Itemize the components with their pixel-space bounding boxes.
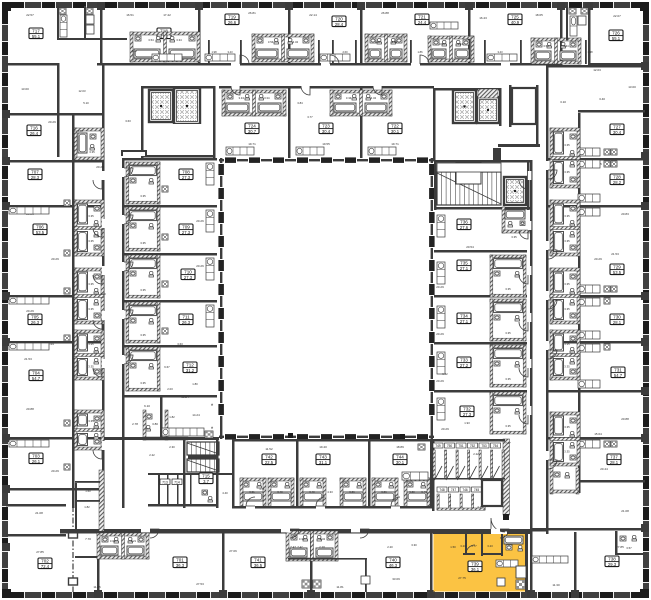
svg-text:3.63: 3.63: [177, 342, 183, 346]
svg-text:710: 710: [184, 269, 192, 274]
svg-text:3.54: 3.54: [543, 44, 549, 48]
svg-text:707: 707: [31, 169, 39, 174]
svg-text:20.88: 20.88: [621, 417, 629, 421]
svg-text:27.06: 27.06: [229, 549, 237, 553]
svg-text:55.1: 55.1: [32, 34, 41, 39]
svg-text:746: 746: [462, 488, 468, 492]
svg-text:3.54: 3.54: [268, 40, 274, 44]
svg-text:3.35: 3.35: [140, 288, 146, 292]
svg-text:3.35: 3.35: [564, 170, 570, 174]
svg-text:11.30: 11.30: [552, 583, 560, 587]
svg-text:740: 740: [389, 557, 397, 562]
svg-text:1.60: 1.60: [85, 489, 91, 493]
svg-text:3.34: 3.34: [457, 42, 463, 46]
svg-text:28.4: 28.4: [335, 22, 344, 27]
svg-text:3.35: 3.35: [88, 282, 94, 286]
svg-text:3.40: 3.40: [599, 97, 605, 101]
svg-text:20.29: 20.29: [51, 257, 59, 261]
svg-text:3.63: 3.63: [125, 119, 131, 123]
svg-text:31.2: 31.2: [186, 368, 195, 373]
svg-text:72.4: 72.4: [41, 564, 50, 569]
svg-text:55.1: 55.1: [612, 36, 621, 41]
svg-text:3.23: 3.23: [460, 544, 466, 548]
svg-text:719: 719: [228, 14, 236, 19]
svg-text:3.35: 3.35: [88, 342, 94, 346]
svg-text:3.35: 3.35: [88, 365, 94, 369]
svg-text:27.2: 27.2: [460, 363, 469, 368]
svg-text:30.1: 30.1: [391, 129, 400, 134]
svg-text:2.22: 2.22: [473, 452, 479, 456]
svg-text:3.35: 3.35: [140, 381, 146, 385]
svg-text:750: 750: [447, 444, 453, 448]
svg-text:7.47: 7.47: [297, 545, 303, 549]
svg-text:2.20: 2.20: [387, 545, 393, 549]
svg-text:3.40: 3.40: [77, 129, 83, 133]
svg-text:29.3: 29.3: [608, 562, 617, 567]
svg-text:27.3: 27.3: [182, 230, 191, 235]
svg-text:54.7: 54.7: [32, 376, 41, 381]
svg-text:1.86: 1.86: [417, 50, 423, 54]
svg-text:19.55: 19.55: [322, 142, 330, 146]
svg-text:22.5: 22.5: [265, 460, 274, 465]
svg-text:3.54: 3.54: [148, 38, 154, 42]
svg-text:728: 728: [613, 174, 621, 179]
svg-text:3.35: 3.35: [564, 342, 570, 346]
svg-text:26.3: 26.3: [182, 320, 191, 325]
svg-text:20.29: 20.29: [436, 379, 444, 383]
svg-text:3.35: 3.35: [511, 235, 517, 239]
svg-text:722: 722: [391, 123, 399, 128]
svg-text:4.13: 4.13: [131, 49, 137, 53]
svg-text:22.07: 22.07: [613, 14, 621, 18]
svg-text:3.35: 3.35: [564, 425, 570, 429]
svg-text:3.51: 3.51: [249, 490, 255, 494]
svg-text:20.54: 20.54: [466, 245, 474, 249]
svg-text:4.40: 4.40: [477, 505, 483, 509]
svg-text:18.89: 18.89: [396, 445, 404, 449]
svg-text:20.29: 20.29: [594, 257, 602, 261]
svg-text:3.35: 3.35: [88, 419, 94, 423]
svg-text:725: 725: [511, 14, 519, 19]
svg-text:31.1: 31.1: [319, 460, 328, 465]
svg-text:12.03: 12.03: [593, 68, 601, 72]
svg-text:3.34: 3.34: [320, 537, 326, 541]
svg-text:16.51: 16.51: [126, 13, 134, 17]
svg-text:3.35: 3.35: [505, 287, 511, 291]
svg-text:3.35: 3.35: [89, 150, 95, 154]
svg-text:744: 744: [396, 454, 404, 459]
svg-text:11.81: 11.81: [336, 585, 344, 589]
svg-text:3.40: 3.40: [277, 490, 283, 494]
svg-text:706: 706: [36, 224, 44, 229]
svg-text:14.24: 14.24: [192, 413, 200, 417]
svg-text:701: 701: [176, 557, 184, 562]
svg-text:3.34: 3.34: [299, 537, 305, 541]
svg-text:3.35: 3.35: [505, 331, 511, 335]
svg-text:26.81: 26.81: [248, 11, 256, 15]
svg-text:733: 733: [460, 357, 468, 362]
svg-text:13.00: 13.00: [628, 85, 636, 89]
svg-text:712: 712: [186, 362, 194, 367]
svg-text:708: 708: [182, 169, 190, 174]
svg-text:12.03: 12.03: [79, 89, 86, 93]
svg-text:26.6: 26.6: [228, 20, 237, 25]
svg-text:3.86: 3.86: [349, 490, 355, 494]
svg-text:27.6: 27.6: [460, 225, 469, 230]
svg-text:741: 741: [254, 557, 262, 562]
svg-text:3.43: 3.43: [227, 50, 233, 54]
svg-text:3.54: 3.54: [375, 40, 381, 44]
svg-text:26.3: 26.3: [31, 320, 40, 325]
svg-text:20.29: 20.29: [51, 469, 59, 473]
svg-text:749: 749: [435, 444, 441, 448]
svg-text:743: 743: [319, 454, 327, 459]
svg-text:716: 716: [30, 125, 38, 130]
svg-text:19.71: 19.71: [248, 142, 256, 146]
svg-text:20.29: 20.29: [48, 120, 56, 124]
svg-text:6.10: 6.10: [144, 404, 150, 408]
svg-text:30.4: 30.4: [322, 129, 331, 134]
svg-text:3.86: 3.86: [381, 490, 387, 494]
svg-text:6.42: 6.42: [442, 372, 448, 376]
svg-text:738: 738: [608, 556, 616, 561]
svg-text:3.35: 3.35: [564, 214, 570, 218]
svg-text:19.71: 19.71: [391, 142, 399, 146]
svg-text:20.26: 20.26: [96, 165, 104, 169]
svg-text:20.26: 20.26: [196, 264, 204, 268]
svg-text:20.44: 20.44: [600, 467, 608, 471]
svg-text:723: 723: [322, 123, 330, 128]
svg-text:3.80: 3.80: [409, 490, 415, 494]
svg-text:7.70: 7.70: [85, 537, 91, 541]
svg-text:28.2: 28.2: [613, 180, 622, 185]
svg-text:1.98: 1.98: [211, 50, 217, 54]
svg-text:36.5: 36.5: [254, 563, 263, 568]
svg-text:11.25: 11.25: [93, 585, 101, 589]
svg-text:4.33: 4.33: [327, 490, 333, 494]
svg-text:27.75: 27.75: [458, 576, 466, 580]
svg-text:20.29: 20.29: [26, 309, 34, 313]
svg-text:727: 727: [613, 124, 621, 129]
svg-text:36.3: 36.3: [176, 563, 185, 568]
svg-text:732: 732: [463, 406, 471, 411]
svg-text:1.82: 1.82: [169, 415, 175, 419]
svg-text:18.65: 18.65: [535, 13, 543, 17]
svg-text:2.60: 2.60: [342, 50, 348, 54]
svg-text:1.93: 1.93: [464, 421, 470, 425]
svg-text:11.52: 11.52: [265, 447, 273, 451]
svg-text:745: 745: [474, 488, 480, 492]
svg-text:21.53: 21.53: [611, 252, 619, 256]
svg-text:26.4: 26.4: [30, 131, 39, 136]
svg-text:53.5: 53.5: [36, 230, 45, 235]
svg-text:720: 720: [335, 16, 343, 21]
svg-text:734: 734: [460, 313, 468, 318]
svg-text:711: 711: [182, 314, 190, 319]
svg-text:713: 713: [162, 480, 168, 484]
svg-text:53.5: 53.5: [613, 270, 622, 275]
svg-text:3.34: 3.34: [264, 96, 270, 100]
svg-text:3.51: 3.51: [259, 487, 265, 491]
svg-text:28.1: 28.1: [613, 320, 622, 325]
svg-text:752: 752: [470, 444, 476, 448]
svg-text:3.80: 3.80: [152, 422, 158, 426]
svg-text:714: 714: [174, 480, 180, 484]
svg-text:3.57: 3.57: [626, 546, 632, 550]
svg-text:3.34: 3.34: [293, 40, 299, 44]
svg-text:30.1: 30.1: [396, 460, 405, 465]
svg-text:702: 702: [41, 558, 49, 563]
svg-text:27.3: 27.3: [184, 275, 193, 280]
svg-text:54.7: 54.7: [614, 373, 623, 378]
svg-text:753: 753: [481, 444, 487, 448]
svg-text:1.98: 1.98: [587, 50, 593, 54]
svg-text:3.34: 3.34: [392, 40, 398, 44]
svg-text:30.4: 30.4: [613, 130, 622, 135]
svg-text:7.07: 7.07: [505, 441, 511, 445]
svg-text:1.80: 1.80: [192, 382, 198, 386]
svg-text:2.78: 2.78: [132, 422, 138, 426]
svg-text:26.88: 26.88: [381, 11, 389, 15]
svg-text:3.34: 3.34: [371, 96, 377, 100]
svg-text:3.35: 3.35: [88, 214, 94, 218]
svg-text:717: 717: [32, 28, 40, 33]
svg-text:709: 709: [182, 224, 190, 229]
svg-text:751: 751: [458, 444, 464, 448]
svg-text:20.83: 20.83: [621, 212, 629, 216]
svg-text:1.82: 1.82: [84, 505, 90, 509]
svg-text:742: 742: [265, 454, 273, 459]
svg-text:739: 739: [471, 561, 479, 566]
svg-text:704: 704: [32, 370, 40, 375]
svg-text:737: 737: [610, 454, 618, 459]
svg-text:22.14: 22.14: [309, 13, 317, 17]
svg-text:17.42: 17.42: [163, 13, 171, 17]
svg-text:21.53: 21.53: [24, 357, 32, 361]
svg-text:726: 726: [612, 30, 620, 35]
svg-text:27.1: 27.1: [460, 266, 469, 271]
svg-text:3.03: 3.03: [100, 292, 106, 296]
svg-text:2.22: 2.22: [149, 453, 155, 457]
svg-text:28.1: 28.1: [610, 460, 619, 465]
svg-text:3.35: 3.35: [564, 307, 570, 311]
svg-text:24.4: 24.4: [418, 20, 427, 25]
svg-text:3.35: 3.35: [564, 239, 570, 243]
svg-text:27.3: 27.3: [182, 175, 191, 180]
svg-text:27.85: 27.85: [36, 550, 44, 554]
svg-text:27.53: 27.53: [196, 582, 204, 586]
svg-text:2.30: 2.30: [169, 445, 175, 449]
svg-text:3.7: 3.7: [203, 479, 209, 484]
svg-text:20.29: 20.29: [436, 332, 444, 336]
svg-text:20.26: 20.26: [196, 219, 204, 223]
svg-text:1.77: 1.77: [471, 544, 477, 548]
svg-text:3.77: 3.77: [307, 115, 313, 119]
svg-text:3.35: 3.35: [88, 307, 94, 311]
svg-text:22.57: 22.57: [26, 13, 34, 17]
svg-text:19.40: 19.40: [319, 445, 327, 449]
svg-text:735: 735: [460, 260, 468, 265]
svg-text:20.29: 20.29: [441, 427, 449, 431]
svg-text:3.10: 3.10: [560, 100, 566, 104]
svg-text:3.30: 3.30: [411, 543, 417, 547]
svg-text:26.1: 26.1: [32, 459, 41, 464]
svg-text:5.10: 5.10: [83, 101, 89, 105]
svg-text:730: 730: [613, 314, 621, 319]
svg-text:3.34: 3.34: [238, 96, 244, 100]
svg-text:15.64: 15.64: [594, 432, 602, 436]
svg-text:3.35: 3.35: [88, 239, 94, 243]
svg-text:3.34: 3.34: [176, 38, 182, 42]
svg-text:703: 703: [32, 453, 40, 458]
svg-text:3.40: 3.40: [421, 490, 427, 494]
svg-text:21.08: 21.08: [621, 509, 629, 513]
svg-text:27.3: 27.3: [463, 412, 472, 417]
svg-text:33.09: 33.09: [392, 577, 400, 581]
svg-text:13.00: 13.00: [21, 87, 29, 91]
svg-text:3.40: 3.40: [309, 490, 315, 494]
svg-text:3.35: 3.35: [140, 241, 146, 245]
svg-text:27.1: 27.1: [460, 319, 469, 324]
svg-text:3.34: 3.34: [346, 96, 352, 100]
svg-text:3.35: 3.35: [140, 194, 146, 198]
svg-text:748: 748: [439, 488, 445, 492]
svg-text:30.7: 30.7: [248, 129, 257, 134]
svg-text:20.88: 20.88: [26, 407, 34, 411]
svg-text:3.35: 3.35: [505, 377, 511, 381]
svg-text:4.40: 4.40: [222, 491, 228, 495]
svg-text:21.08: 21.08: [35, 511, 43, 515]
svg-text:736: 736: [460, 219, 468, 224]
svg-text:3.54: 3.54: [439, 42, 445, 46]
svg-text:28.3: 28.3: [31, 175, 40, 180]
svg-text:747: 747: [451, 488, 457, 492]
svg-text:20.29: 20.29: [436, 285, 444, 289]
svg-text:3.35: 3.35: [564, 143, 570, 147]
svg-text:16.43: 16.43: [479, 16, 487, 20]
svg-text:3.84: 3.84: [297, 101, 303, 105]
svg-text:715: 715: [202, 473, 210, 478]
svg-text:6.67: 6.67: [164, 365, 170, 369]
svg-text:2.03: 2.03: [167, 387, 173, 391]
svg-text:40.9: 40.9: [511, 20, 520, 25]
svg-text:3.35: 3.35: [564, 282, 570, 286]
svg-text:3.35: 3.35: [505, 424, 511, 428]
svg-text:705: 705: [31, 314, 39, 319]
svg-text:36.1: 36.1: [471, 567, 480, 572]
svg-text:3.35: 3.35: [564, 450, 570, 454]
svg-text:3.00: 3.00: [110, 539, 116, 543]
svg-text:3.23: 3.23: [487, 544, 493, 548]
svg-text:724: 724: [248, 123, 256, 128]
svg-text:3.35: 3.35: [140, 333, 146, 337]
svg-text:3.21: 3.21: [131, 539, 137, 543]
svg-text:754: 754: [493, 444, 499, 448]
svg-text:3.43: 3.43: [497, 50, 503, 54]
svg-text:731: 731: [614, 367, 622, 372]
svg-text:3.34: 3.34: [563, 44, 569, 48]
svg-text:46.3: 46.3: [389, 563, 398, 568]
svg-text:3.35: 3.35: [564, 365, 570, 369]
svg-text:721: 721: [418, 14, 426, 19]
svg-text:729: 729: [613, 264, 621, 269]
svg-text:1.50: 1.50: [450, 545, 456, 549]
